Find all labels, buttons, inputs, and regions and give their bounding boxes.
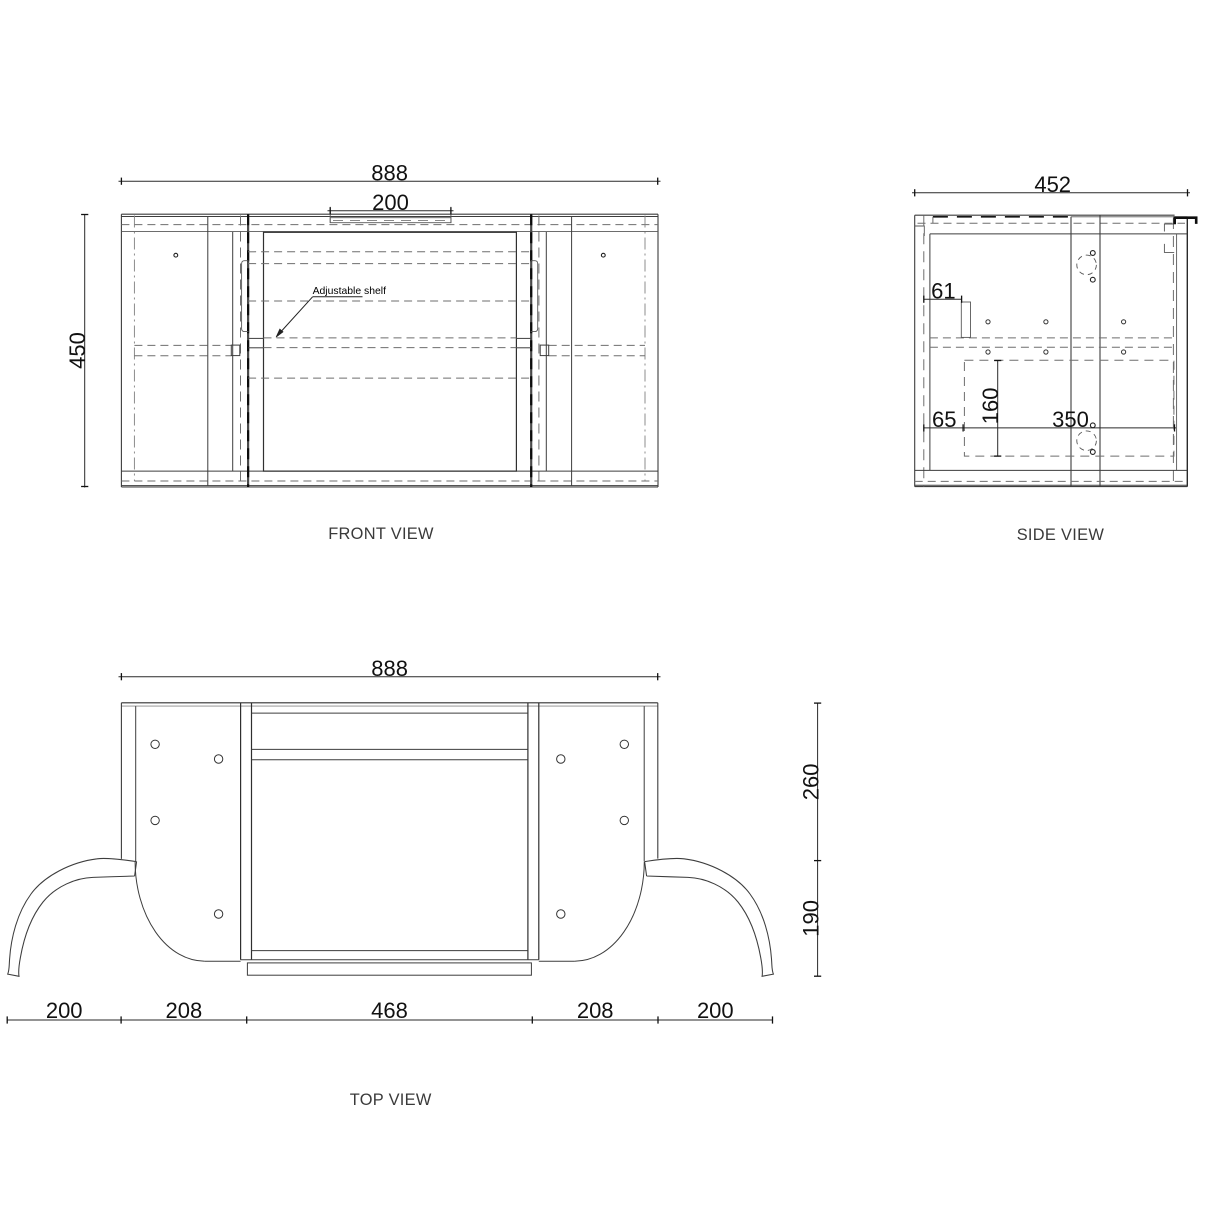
svg-text:65: 65: [932, 407, 956, 432]
svg-text:208: 208: [577, 998, 614, 1023]
svg-text:468: 468: [371, 998, 408, 1023]
svg-text:TOP VIEW: TOP VIEW: [350, 1091, 432, 1109]
svg-text:61: 61: [931, 278, 955, 303]
svg-text:200: 200: [697, 998, 734, 1023]
svg-text:Adjustable shelf: Adjustable shelf: [313, 286, 386, 297]
svg-text:190: 190: [798, 900, 823, 937]
svg-text:FRONT VIEW: FRONT VIEW: [328, 525, 434, 543]
svg-text:452: 452: [1034, 172, 1071, 197]
svg-text:200: 200: [372, 190, 409, 215]
svg-text:888: 888: [371, 161, 408, 186]
svg-text:350: 350: [1052, 407, 1089, 432]
svg-text:200: 200: [46, 998, 83, 1023]
svg-text:160: 160: [978, 388, 1003, 425]
svg-text:SIDE VIEW: SIDE VIEW: [1017, 526, 1105, 544]
svg-text:450: 450: [65, 332, 90, 369]
svg-text:208: 208: [166, 998, 203, 1023]
svg-text:260: 260: [798, 764, 823, 801]
svg-text:888: 888: [371, 656, 408, 681]
